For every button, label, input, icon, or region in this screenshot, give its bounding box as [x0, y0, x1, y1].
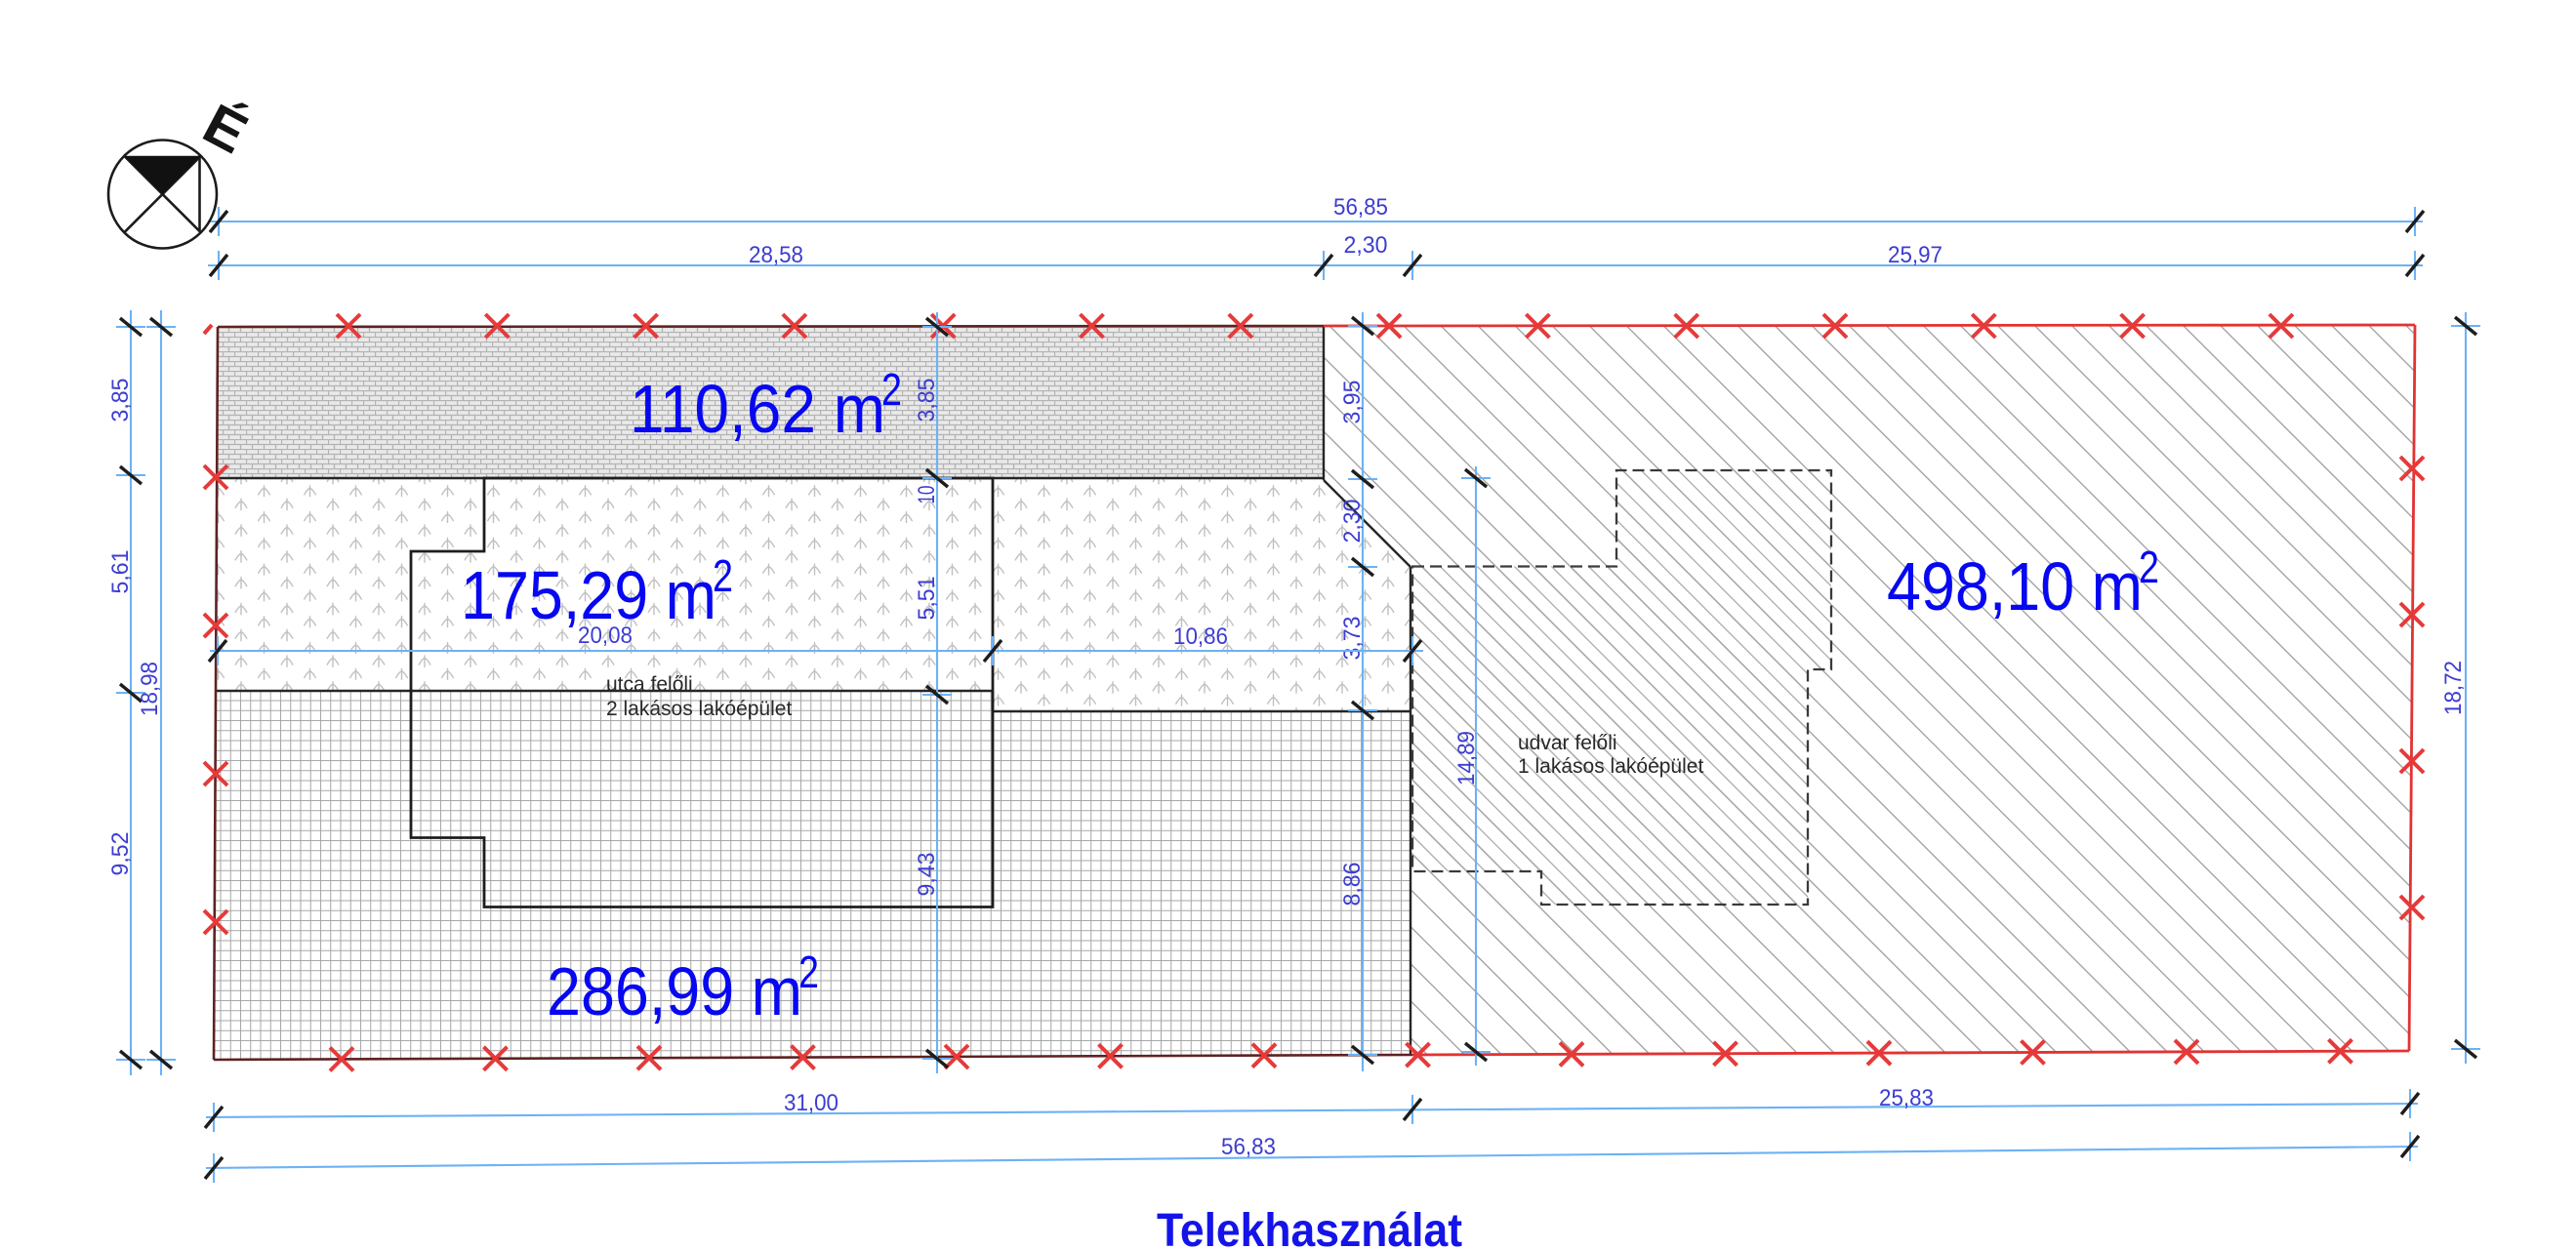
svg-text:9,52: 9,52	[107, 832, 134, 876]
svg-text:5,51: 5,51	[914, 577, 940, 621]
svg-text:5,61: 5,61	[107, 550, 134, 594]
svg-text:9,43: 9,43	[914, 853, 940, 897]
svg-text:498,10 m: 498,10 m	[1887, 548, 2143, 624]
svg-text:286,99 m: 286,99 m	[547, 953, 802, 1029]
svg-text:10,86: 10,86	[1173, 624, 1228, 650]
svg-text:18,72: 18,72	[2440, 661, 2467, 715]
svg-text:utca felőli: utca felőli	[606, 673, 693, 696]
svg-text:2: 2	[2139, 542, 2159, 592]
svg-text:2,30: 2,30	[1344, 232, 1388, 259]
svg-text:Telekhasználat: Telekhasználat	[1157, 1205, 1462, 1249]
svg-text:56,85: 56,85	[1333, 194, 1388, 221]
svg-text:3,85: 3,85	[107, 379, 134, 423]
svg-text:2,30: 2,30	[1339, 500, 1366, 544]
svg-text:3,73: 3,73	[1339, 617, 1366, 661]
svg-text:31,00: 31,00	[784, 1090, 838, 1116]
svg-text:2: 2	[713, 550, 733, 601]
svg-text:3,95: 3,95	[1339, 381, 1366, 424]
svg-text:28,58: 28,58	[749, 242, 803, 268]
svg-text:25,97: 25,97	[1888, 242, 1942, 268]
svg-text:2: 2	[881, 364, 902, 415]
svg-text:8,86: 8,86	[1339, 863, 1366, 907]
svg-text:14,89: 14,89	[1453, 731, 1480, 786]
svg-text:10: 10	[914, 486, 940, 504]
svg-text:3,85: 3,85	[914, 379, 940, 423]
svg-text:2: 2	[798, 947, 819, 997]
svg-text:18,98: 18,98	[137, 662, 163, 716]
svg-text:udvar felőli: udvar felőli	[1518, 732, 1617, 754]
svg-text:2 lakásos lakóépület: 2 lakásos lakóépület	[606, 698, 792, 720]
svg-text:1 lakásos lakóépület: 1 lakásos lakóépület	[1518, 755, 1703, 778]
svg-text:110,62 m: 110,62 m	[630, 371, 885, 447]
svg-text:175,29 m: 175,29 m	[461, 557, 716, 633]
svg-text:56,83: 56,83	[1221, 1134, 1276, 1160]
svg-text:25,83: 25,83	[1879, 1085, 1934, 1111]
